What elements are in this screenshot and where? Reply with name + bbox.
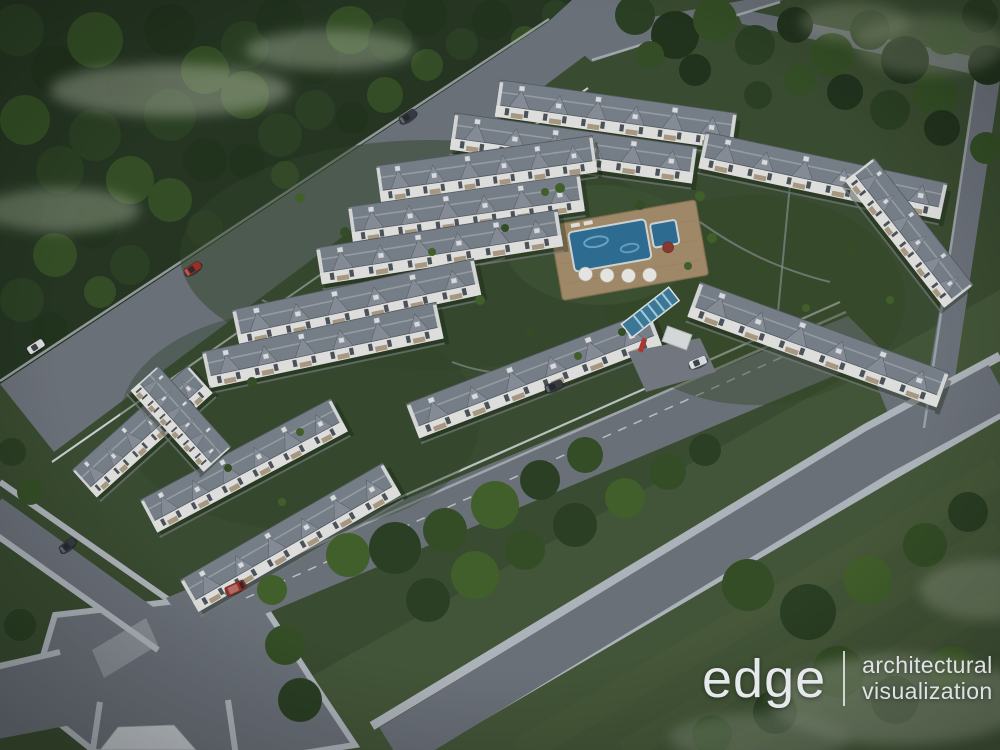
logo-divider <box>843 651 845 706</box>
vignette-overlay <box>0 0 1000 750</box>
logo-brand: edge <box>702 652 826 706</box>
logo: edge architectural visualization <box>702 651 993 706</box>
logo-tagline-line1: architectural <box>862 653 993 679</box>
logo-tagline: architectural visualization <box>862 653 993 705</box>
logo-tagline-line2: visualization <box>862 679 993 705</box>
aerial-scene <box>0 0 1000 750</box>
render-canvas: edge architectural visualization <box>0 0 1000 750</box>
